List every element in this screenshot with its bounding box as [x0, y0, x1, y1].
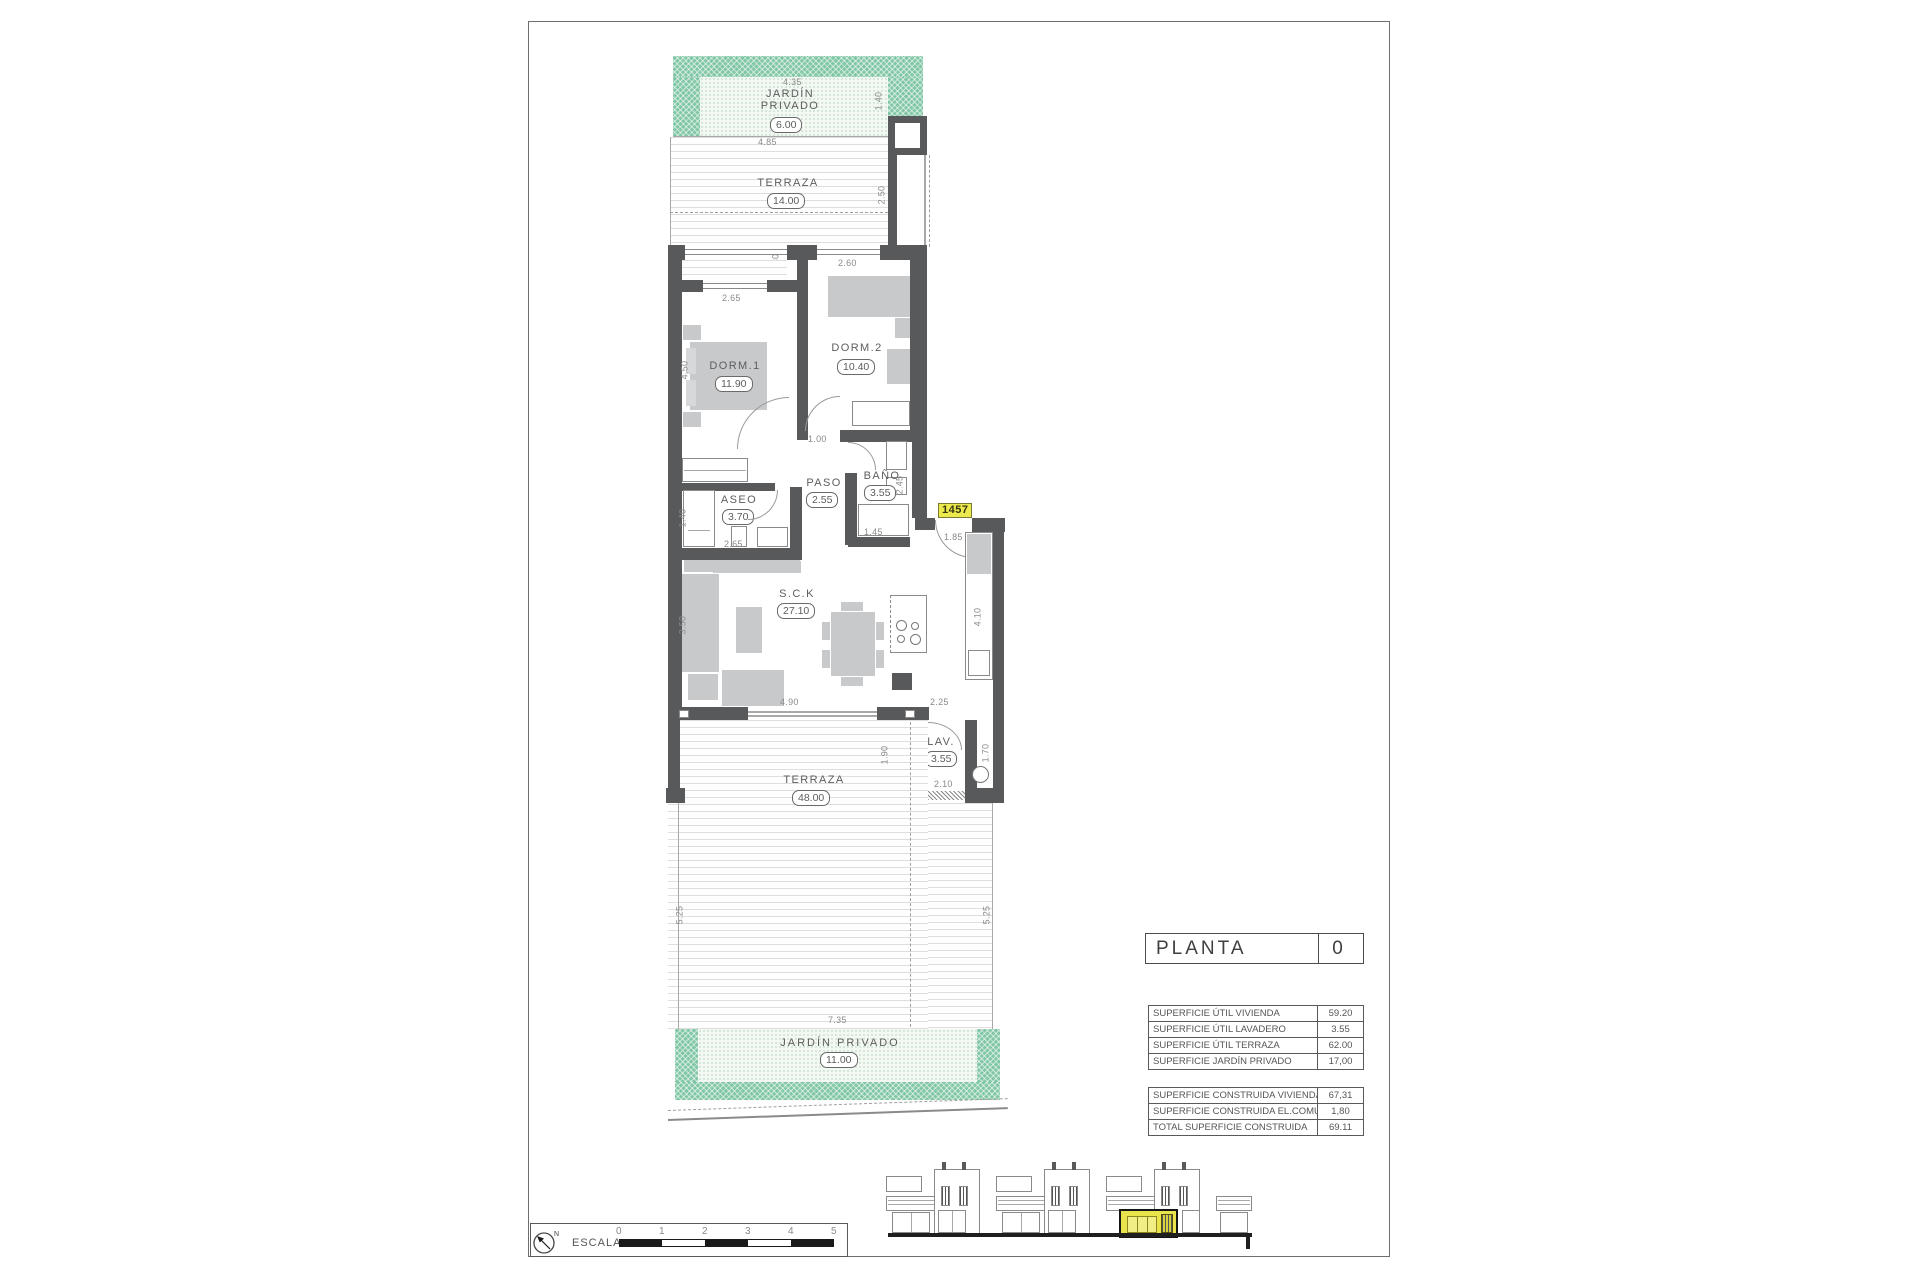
dimension-label: 1.85: [944, 532, 963, 542]
scale-tick: 4: [788, 1226, 794, 1237]
terrace-paving: [682, 260, 787, 280]
rail-line: [998, 1204, 1046, 1205]
wall-segment: [666, 788, 685, 803]
scale-tick: 5: [831, 1226, 837, 1237]
dimension-label: 1.90: [879, 746, 889, 765]
north-arrow-icon: N: [531, 1227, 561, 1255]
chimney: [1052, 1162, 1056, 1170]
dimension-label: 4.10: [972, 608, 982, 627]
elevation-ground-tick: [1246, 1237, 1250, 1249]
sofa: [688, 674, 718, 700]
room-area-jardin-top: 6.00: [770, 117, 802, 133]
room-area-dorm1: 11.90: [715, 376, 753, 392]
highlighted-unit-shutter: [1161, 1214, 1173, 1233]
dimension-label: 2.65: [724, 539, 743, 549]
room-label-jardin-bottom: JARDÍN PRIVADO: [780, 1037, 900, 1049]
chimney: [962, 1162, 966, 1170]
garden-hatch: [673, 77, 700, 137]
terrace-dashed-line: [670, 212, 888, 213]
areas-table-row-value: 69.11: [1317, 1119, 1364, 1136]
bed: [887, 349, 910, 384]
rail-line: [888, 1200, 936, 1201]
chimney: [1162, 1162, 1166, 1170]
areas-table-row-label: SUPERFICIE ÚTIL TERRAZA: [1148, 1037, 1318, 1054]
bed: [828, 276, 910, 317]
dining-table: [831, 612, 875, 676]
room-label-terraza: TERRAZA: [779, 774, 849, 786]
shutter-window: [959, 1186, 968, 1206]
areas-table-row-value: 17,00: [1317, 1053, 1364, 1070]
wall-segment: [972, 518, 1005, 532]
rail-line: [1218, 1200, 1250, 1201]
mullion: [911, 1213, 912, 1232]
chair: [876, 650, 884, 668]
dimension-label: 2.45: [894, 476, 904, 495]
scale-tick: 3: [745, 1226, 751, 1237]
wall-segment: [845, 473, 857, 545]
overhang-dashed-line: [910, 722, 911, 1032]
shutter-window: [1069, 1186, 1078, 1206]
mullion: [1062, 1211, 1063, 1232]
mullion: [952, 1211, 953, 1232]
rail-line: [1108, 1200, 1156, 1201]
dimension-label: 1.70: [980, 744, 990, 763]
room-area-bano: 3.55: [864, 485, 896, 501]
dimension-label: 2.60: [838, 258, 857, 268]
washing-machine: [972, 766, 989, 783]
wall-anchor: [905, 710, 915, 718]
boundary-line: [992, 803, 993, 1030]
scale-bar-segment: [705, 1239, 748, 1247]
title-block-floor: 0: [1318, 933, 1364, 964]
chair: [822, 650, 830, 668]
mullion: [1021, 1213, 1022, 1232]
toilet: [886, 441, 907, 470]
cooktop-burner: [897, 635, 905, 643]
floor-plan-sheet: 4.35 1.40 JARDÍNPRIVADO 6.00 4.85 2.50 T…: [0, 0, 1920, 1280]
shutter-window: [1179, 1186, 1188, 1206]
cushion: [895, 318, 910, 338]
chimney: [1182, 1162, 1186, 1170]
scale-bar-segment: [619, 1239, 662, 1247]
wall-segment: [993, 532, 1004, 708]
areas-table-row-value: 62.00: [1317, 1037, 1364, 1054]
wall-anchor: [679, 710, 689, 718]
chair: [876, 622, 884, 640]
wall-segment: [797, 260, 808, 440]
unit-number-tag: 1457: [938, 503, 972, 518]
scale-tick: 2: [702, 1226, 708, 1237]
desk: [852, 401, 910, 426]
room-label-jardin-top: JARDÍNPRIVADO: [755, 88, 825, 112]
wall-segment: [888, 155, 897, 247]
areas-table-row-label: SUPERFICIE CONSTRUIDA VIVIENDA: [1148, 1087, 1318, 1104]
dimension-label: 1.45: [864, 527, 883, 537]
wall-segment: [848, 537, 910, 547]
wall-segment: [767, 280, 800, 292]
rail-line: [1218, 1204, 1250, 1205]
wall-segment: [880, 245, 927, 260]
shutter-window: [1161, 1186, 1170, 1206]
chair: [841, 602, 863, 611]
shutter-window: [1051, 1186, 1060, 1206]
cooktop-burner: [896, 620, 907, 631]
cooktop-burner: [910, 634, 921, 645]
nightstand: [683, 412, 701, 427]
title-block-label: PLANTA: [1145, 933, 1320, 964]
sofa: [722, 670, 784, 706]
scale-tick: 1: [659, 1226, 665, 1237]
shower-line: [688, 530, 710, 531]
wall-segment: [668, 720, 680, 788]
dimension-label: 4.90: [780, 697, 799, 707]
nightstand: [683, 325, 701, 340]
wall-segment: [915, 518, 935, 530]
sofa: [682, 574, 719, 672]
sink: [968, 650, 990, 676]
areas-table-row-label: SUPERFICIE ÚTIL LAVADERO: [1148, 1021, 1318, 1038]
dimension-label: 1.00: [808, 434, 827, 444]
terrace-paving: [670, 137, 888, 245]
rail-line: [888, 1204, 936, 1205]
pillow: [686, 380, 696, 406]
elevation-ground-line: [888, 1233, 1252, 1237]
garden-hatch: [675, 1082, 1000, 1100]
window: [817, 249, 880, 255]
mullion: [1137, 1217, 1138, 1232]
dimension-label: 3.50: [677, 616, 687, 635]
boundary-line: [670, 137, 671, 245]
elevation-window: [886, 1176, 922, 1192]
chair: [841, 677, 863, 686]
areas-table-row-label: SUPERFICIE CONSTRUIDA EL.COMUNES: [1148, 1103, 1318, 1120]
dimension-label: 2.65: [722, 293, 741, 303]
dimension-label: 4.35: [783, 77, 802, 87]
dimension-label: 1.40: [677, 509, 687, 528]
areas-table-row-label: TOTAL SUPERFICIE CONSTRUIDA: [1148, 1119, 1318, 1136]
dimension-label: 2.50: [876, 186, 886, 205]
window: [703, 283, 767, 289]
dimension-label: 5.25: [981, 906, 991, 925]
fridge: [967, 534, 991, 574]
wall-segment: [668, 548, 800, 560]
dimension-label: 1.40: [873, 92, 883, 111]
room-label-dorm2: DORM.2: [822, 342, 892, 354]
sliding-door: [748, 711, 877, 713]
dimension-label: 7.35: [828, 1015, 847, 1025]
stair-core: [888, 116, 927, 155]
areas-table-row-value: 3.55: [1317, 1021, 1364, 1038]
room-label-bano: BAÑO: [847, 470, 917, 482]
rail-line: [1108, 1204, 1156, 1205]
elevation-window: [996, 1176, 1032, 1192]
room-area-terraza: 48.00: [792, 790, 830, 806]
dimension-label: 5.25: [674, 906, 684, 925]
garden-hatch: [673, 56, 923, 77]
elevation-window: [1106, 1176, 1142, 1192]
chimney: [942, 1162, 946, 1170]
room-area-terraza-top: 14.00: [767, 193, 805, 209]
room-area-paso: 2.55: [806, 492, 838, 508]
svg-text:N: N: [554, 1231, 559, 1238]
room-label-sck: S.C.K: [762, 588, 832, 600]
wall-segment: [892, 673, 912, 690]
sliding-door: [748, 715, 877, 717]
garden-hatch: [888, 77, 923, 116]
coffee-table: [736, 607, 762, 653]
cooktop-burner: [911, 622, 919, 630]
room-label-terraza-top: TERRAZA: [753, 177, 823, 189]
dimension-label: 2.10: [934, 779, 953, 789]
wall-segment: [877, 707, 929, 720]
areas-table-row-label: SUPERFICIE JARDÍN PRIVADO: [1148, 1053, 1318, 1070]
wall-segment: [787, 245, 817, 260]
wall-segment: [910, 260, 927, 440]
terrace-paving: [668, 720, 928, 1030]
room-area-jardin-bottom: 11.00: [820, 1052, 858, 1068]
dimension-label: 4.50: [679, 361, 689, 380]
scale-tick: 0: [616, 1226, 622, 1237]
wardrobe-line: [684, 470, 746, 471]
dimension-label: 4.85: [758, 137, 777, 147]
room-area-sck: 27.10: [777, 603, 815, 619]
mullion: [1147, 1217, 1148, 1232]
shutter-window: [941, 1186, 950, 1206]
elevation-window: [1182, 1210, 1200, 1233]
sideboard: [713, 561, 801, 573]
dashed-line: [929, 155, 930, 247]
wall-segment: [965, 788, 1003, 803]
chimney: [1072, 1162, 1076, 1170]
toilet: [757, 527, 788, 547]
dimension-label: 2.25: [930, 697, 949, 707]
scale-bar-segment: [791, 1239, 834, 1247]
wall-segment: [668, 245, 682, 708]
areas-table-row-value: 67,31: [1317, 1087, 1364, 1104]
rail-line: [998, 1200, 1046, 1201]
room-label-dorm1: DORM.1: [700, 360, 770, 372]
areas-table-row-value: 59.20: [1317, 1005, 1364, 1022]
areas-table-row-value: 1,80: [1317, 1103, 1364, 1120]
room-area-dorm2: 10.40: [837, 359, 875, 375]
room-area-lav: 3.55: [925, 751, 957, 767]
door-sill-hatch: [928, 791, 965, 800]
chair: [822, 622, 830, 640]
areas-table-row-label: SUPERFICIE ÚTIL VIVIENDA: [1148, 1005, 1318, 1022]
highlighted-unit-door: [1127, 1216, 1157, 1233]
boundary-line: [924, 155, 926, 247]
glass-door: [1220, 1212, 1248, 1233]
